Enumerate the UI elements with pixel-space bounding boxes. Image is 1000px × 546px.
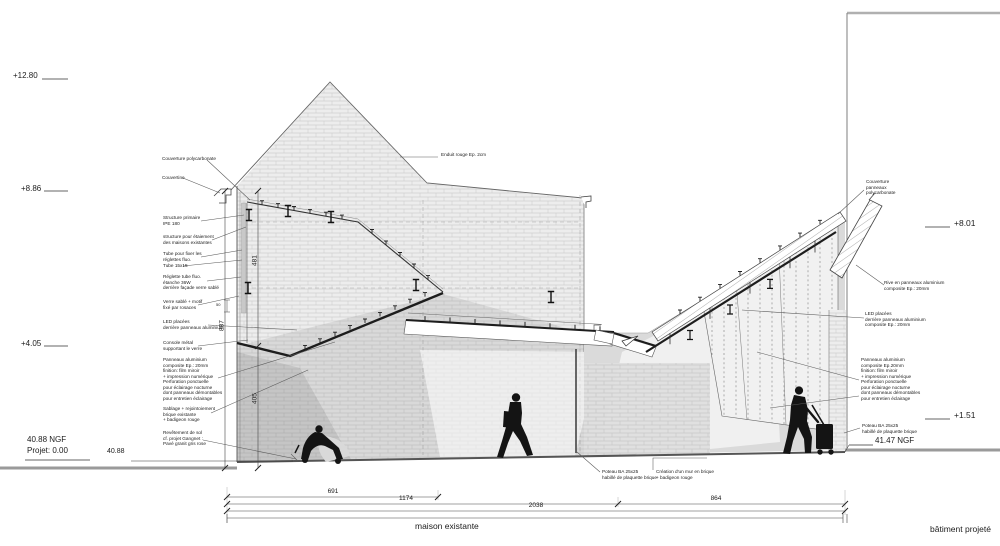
dimension-691: 691 [318, 488, 348, 495]
callout-reglette-fluo: Réglette tube fluo. étanche 36W derrière… [163, 274, 219, 291]
callout-verre-sable: Verre sablé + motif fixé par rosaces [163, 299, 202, 310]
elevation-mark-8-86: +8.86 [21, 184, 41, 195]
callout-panneaux-aluminium-right: Panneaux aluminium composite Ep.20mm fin… [861, 357, 920, 401]
elevation-mark-ground-left: 40.88 [107, 448, 125, 455]
callout-sablage: Sablage + rejointoiement brique existant… [163, 406, 215, 423]
elevation-mark-1-51: +1.51 [954, 410, 976, 420]
section-graphics [0, 0, 1000, 546]
dimension-481: 481 [252, 246, 259, 276]
callout-poteau-ba-center: Poteau BA 25x25 habillé de plaquette bri… [602, 469, 657, 480]
callout-tube-fixation: Tube pour fixer les réglettes fluo. [163, 251, 202, 262]
callout-couvertine: Couvertine [162, 175, 185, 181]
callout-led-right: LED placées derrière panneaux aluminium … [865, 311, 926, 328]
couvertine-flashing [214, 189, 231, 203]
callout-panneaux-aluminium-left: Panneaux aluminium composite Ep.: 20mm f… [163, 357, 222, 401]
callout-enduit-rouge: Enduit rouge Ep. 2cm [441, 152, 486, 158]
elevation-mark-12-80: +12.80 [13, 71, 38, 82]
callout-structure-etaiement: structure pour étaiement des maisons exi… [163, 234, 214, 245]
callout-couverture-polycarbonate: Couverture polycarbonate [162, 156, 216, 162]
callout-rive-aluminium: Rive en panneaux aluminium composite Ep.… [884, 280, 944, 291]
dimension-50: 50 [216, 302, 220, 307]
callout-tube-15x15: Tube 15x15 [163, 263, 188, 269]
dimension-405: 405 [252, 384, 259, 414]
callout-revetement-sol: Revêtement de sol cf. projet Gangnet : P… [163, 430, 206, 447]
callout-structure-primaire: Structure primaire IPE 180 [163, 215, 200, 226]
elevation-mark-8-01: +8.01 [954, 218, 976, 228]
zone-label-projected-building: bâtiment projeté [930, 524, 991, 534]
dimension-864: 864 [700, 495, 732, 502]
elevation-mark-4-05: +4.05 [21, 339, 41, 350]
elevation-mark-ngf-right: 41.47 NGF [875, 436, 914, 447]
callout-creation-mur: Création d'un mur en brique + badigeon r… [656, 469, 714, 480]
callout-poteau-ba-right: Poteau BA 25x25 habillé de plaquette bri… [862, 423, 917, 434]
section-drawing: +12.80 +8.86 +4.05 40.88 NGF Projet: 0.0… [0, 0, 1000, 546]
callout-led-left: LED placées derrière panneaux aluminium [163, 319, 224, 330]
dimension-1174: 1174 [390, 495, 422, 502]
dimension-2038: 2038 [520, 502, 552, 509]
callout-couverture-right: Couverture panneaux polycarbonate [866, 179, 895, 196]
led-panel-wall [703, 219, 838, 432]
callout-console-metal: Console métal supportant le verre [163, 340, 202, 351]
sandblasted-glass-strip [242, 203, 247, 313]
elevation-mark-ngf-left: 40.88 NGF Projet: 0.00 [27, 435, 68, 456]
zone-label-existing-house: maison existante [415, 521, 479, 531]
